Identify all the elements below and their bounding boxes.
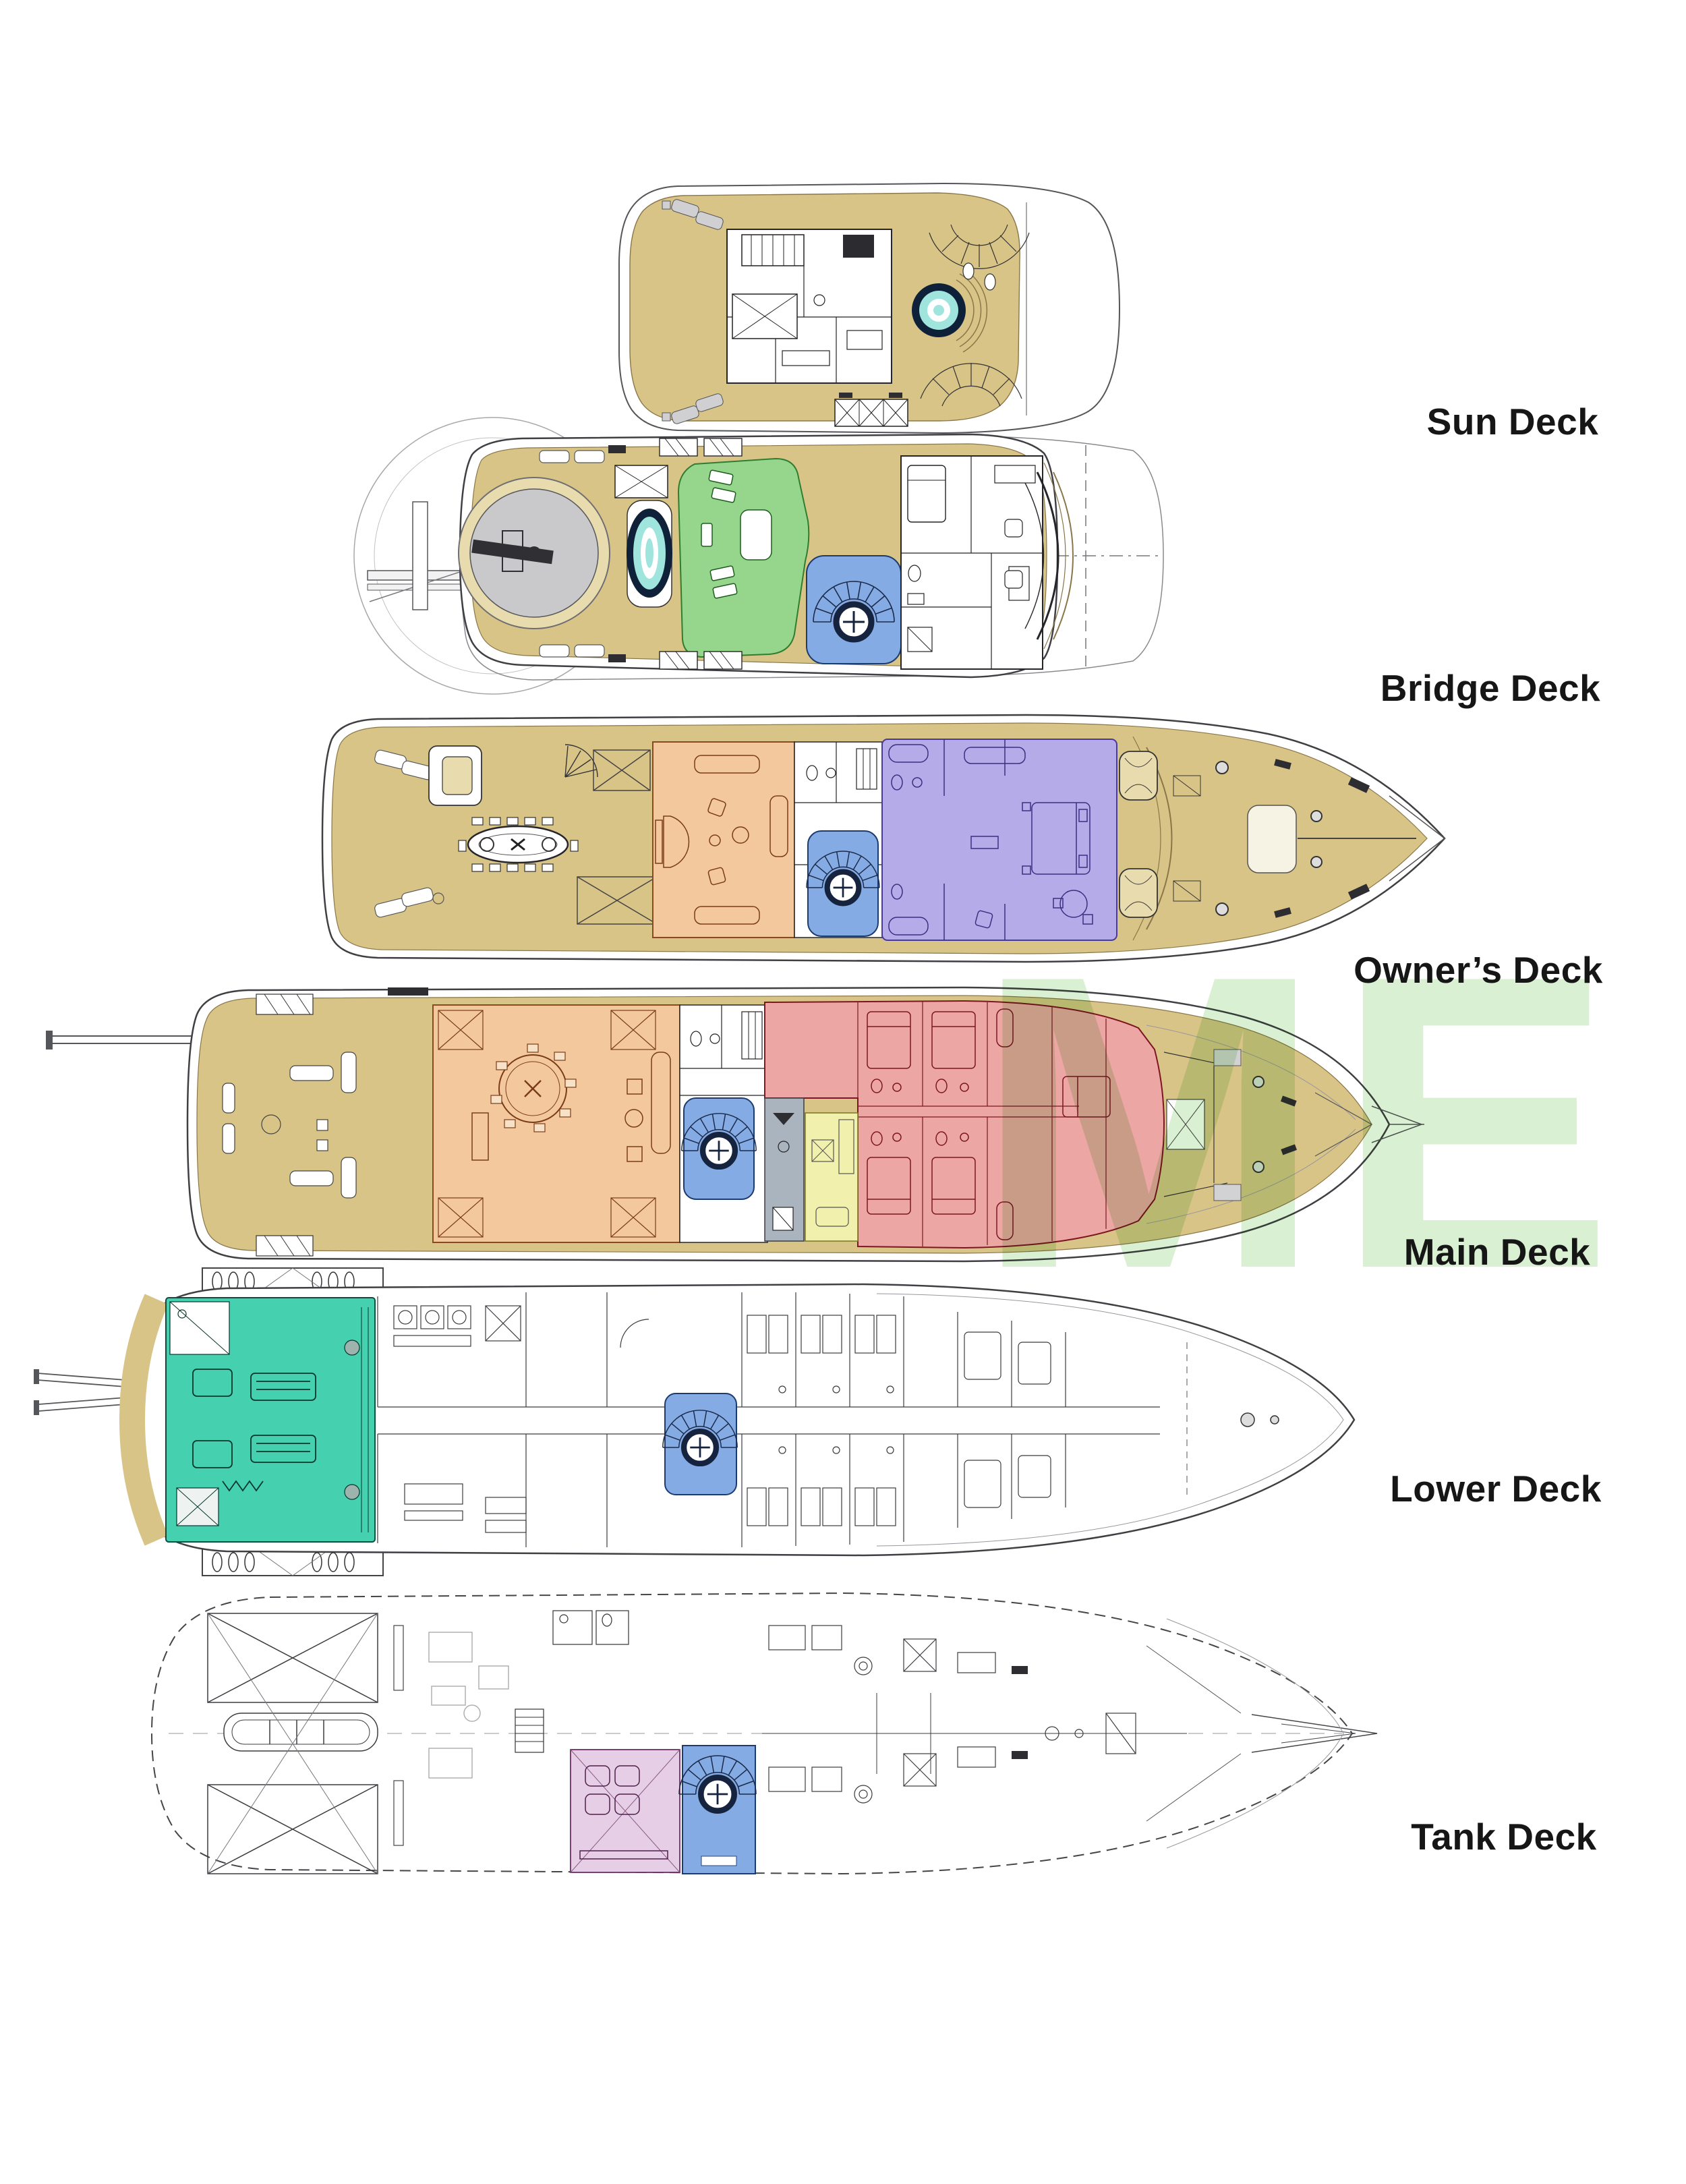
- wheelhouse: [901, 456, 1058, 669]
- sky-lounge-zone: [653, 742, 794, 938]
- owners-deck-label: Owner’s Deck: [1354, 948, 1603, 992]
- lower-deck-plan: [34, 1268, 1354, 1576]
- crane-platform: [459, 478, 610, 629]
- bridge-deck-plan: [354, 418, 1163, 694]
- sun-deck-label: Sun Deck: [1427, 400, 1599, 443]
- vestibule-zone: [765, 1098, 804, 1241]
- owners-stair-zone: [807, 831, 879, 936]
- bridge-deck-pool: [627, 500, 672, 607]
- main-deck-plan: [46, 987, 1424, 1261]
- tank-stair-zone: [679, 1746, 756, 1874]
- tank-deck-plan: [152, 1593, 1377, 1874]
- sun-deck-plan: [619, 183, 1120, 433]
- pantry-zone: [805, 1113, 858, 1241]
- bridge-deck-label: Bridge Deck: [1380, 666, 1600, 710]
- engine-room-zone: [166, 1298, 375, 1542]
- main-deck-label: Main Deck: [1404, 1230, 1591, 1273]
- main-salon-zone: [433, 1005, 680, 1242]
- cinema-zone: [571, 1750, 680, 1872]
- lower-deck-label: Lower Deck: [1390, 1467, 1602, 1510]
- sun-deck-jacuzzi: [912, 283, 966, 337]
- main-stair-zone: [682, 1098, 756, 1199]
- lower-stair-zone: [663, 1393, 737, 1495]
- owners-deck-plan: [322, 715, 1445, 962]
- yacht-deck-plan-sheet: ME Sun Deck Bridge Deck Owner’s Deck Mai…: [0, 0, 1686, 2184]
- tank-deck-label: Tank Deck: [1411, 1815, 1597, 1858]
- owners-suite-zone: [882, 739, 1117, 940]
- bridge-stair-zone: [807, 556, 901, 664]
